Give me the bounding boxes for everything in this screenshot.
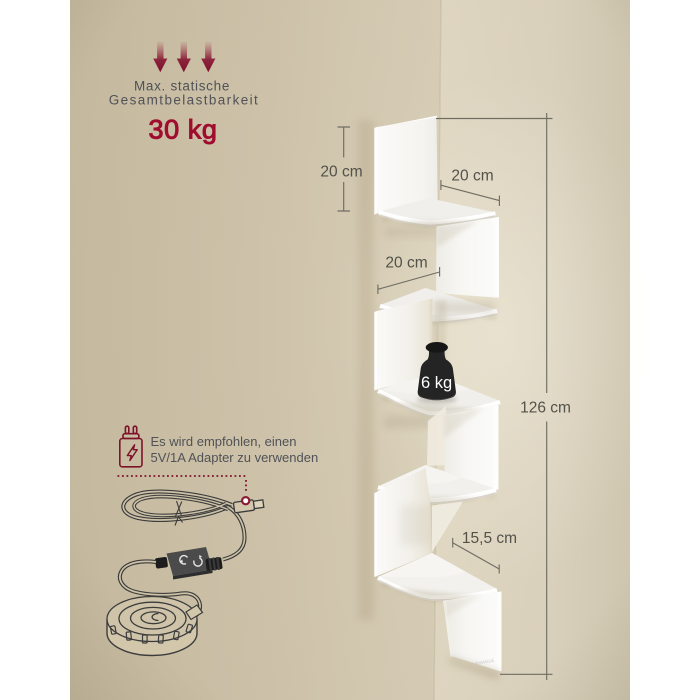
svg-text:20 cm: 20 cm <box>385 255 427 272</box>
svg-text:20 cm: 20 cm <box>451 168 493 185</box>
svg-text:Es wird empfohlen, einen: Es wird empfohlen, einen <box>151 434 297 449</box>
svg-text:Gesamtbelastbarkeit: Gesamtbelastbarkeit <box>109 93 259 108</box>
svg-text:20 cm: 20 cm <box>320 164 362 181</box>
svg-text:5V/1A Adapter zu verwenden: 5V/1A Adapter zu verwenden <box>151 450 319 465</box>
svg-text:15,5 cm: 15,5 cm <box>462 530 517 547</box>
svg-text:6 kg: 6 kg <box>421 374 452 392</box>
svg-text:Max. statische: Max. statische <box>134 79 230 94</box>
svg-text:126 cm: 126 cm <box>520 400 571 417</box>
svg-text:30 kg: 30 kg <box>148 115 217 145</box>
